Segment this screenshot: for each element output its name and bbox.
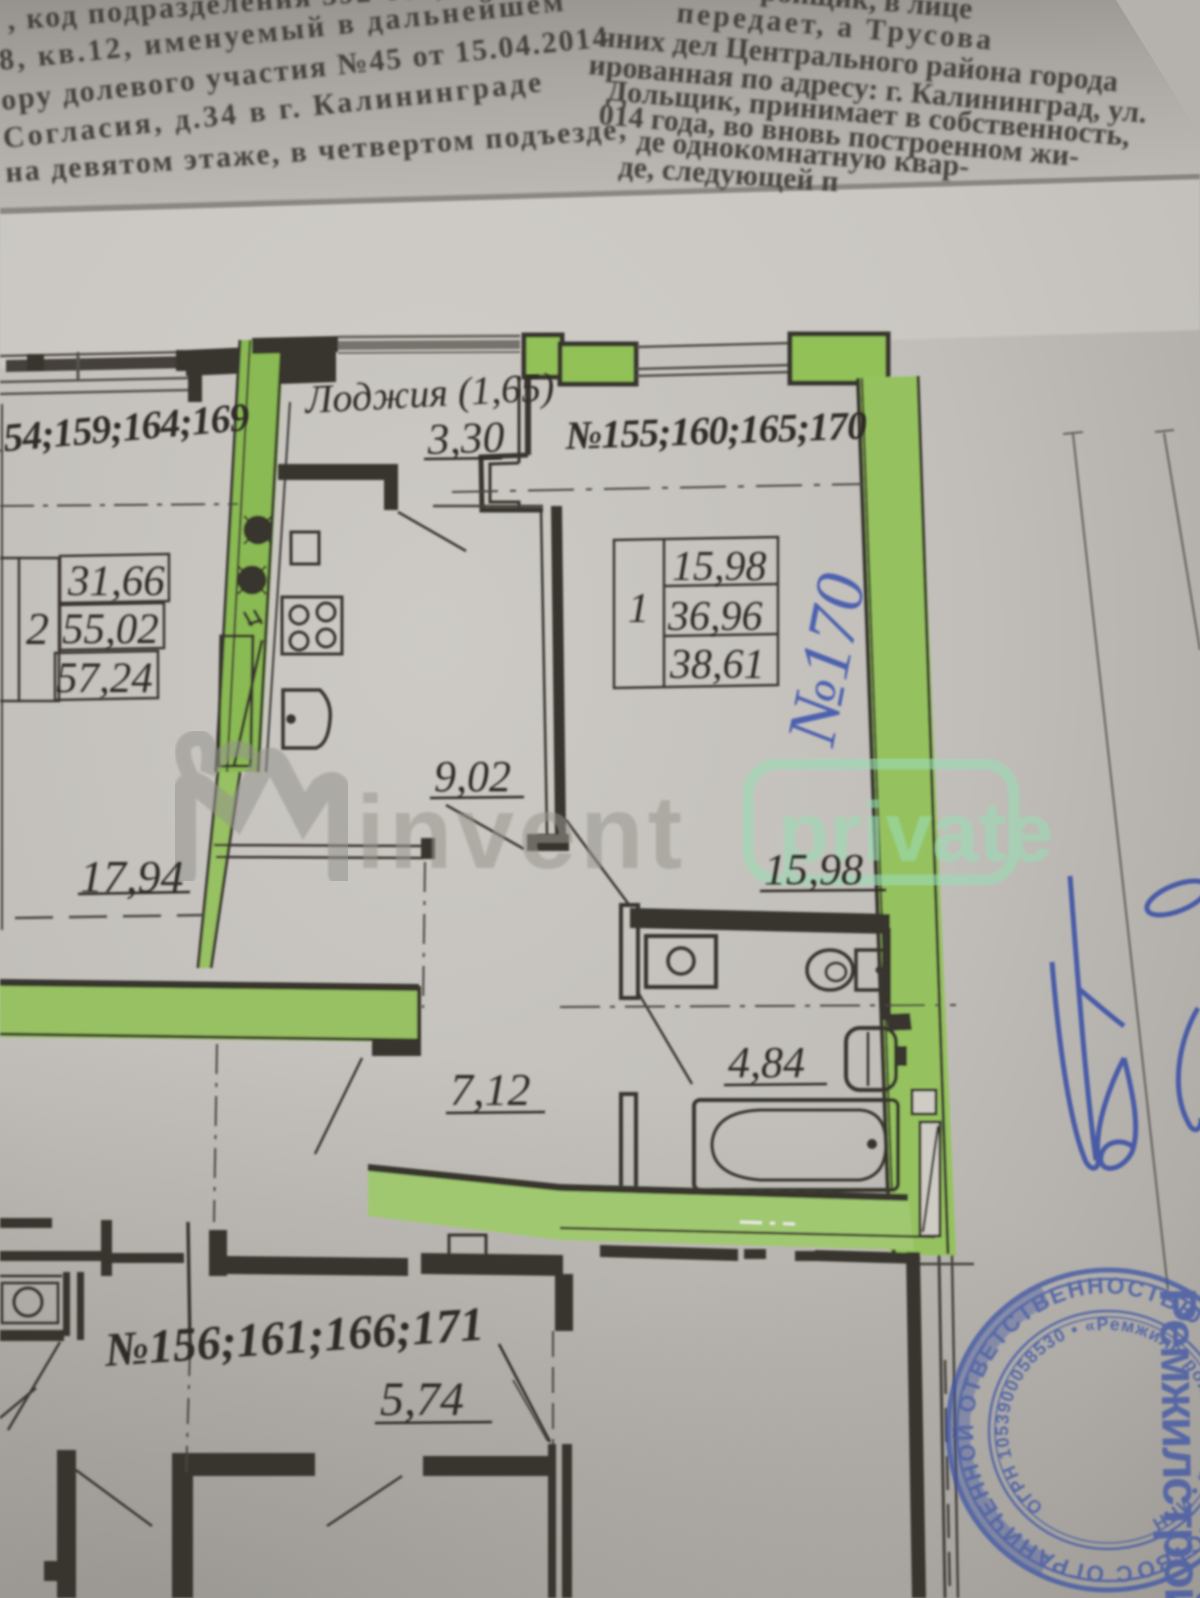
svg-text:36,96: 36,96 [667, 594, 763, 640]
svg-text:9,02: 9,02 [434, 752, 511, 801]
svg-text:15,98: 15,98 [764, 845, 863, 894]
svg-text:4,84: 4,84 [728, 1038, 805, 1087]
svg-text:2: 2 [26, 603, 49, 654]
svg-text:57,24: 57,24 [56, 655, 153, 702]
svg-text:31,66: 31,66 [67, 558, 165, 605]
svg-text:5,74: 5,74 [380, 1373, 464, 1426]
svg-text:7,12: 7,12 [450, 1064, 531, 1115]
svg-text:38,61: 38,61 [669, 642, 765, 688]
svg-text:55,02: 55,02 [62, 606, 159, 653]
svg-text:15,98: 15,98 [672, 544, 767, 590]
svg-text:Ремжилстрой-: Ремжилстрой- [1148, 1287, 1200, 1598]
svg-text:3,30: 3,30 [426, 412, 506, 464]
svg-text:invent: invent [356, 775, 686, 891]
svg-text:1: 1 [628, 586, 649, 632]
